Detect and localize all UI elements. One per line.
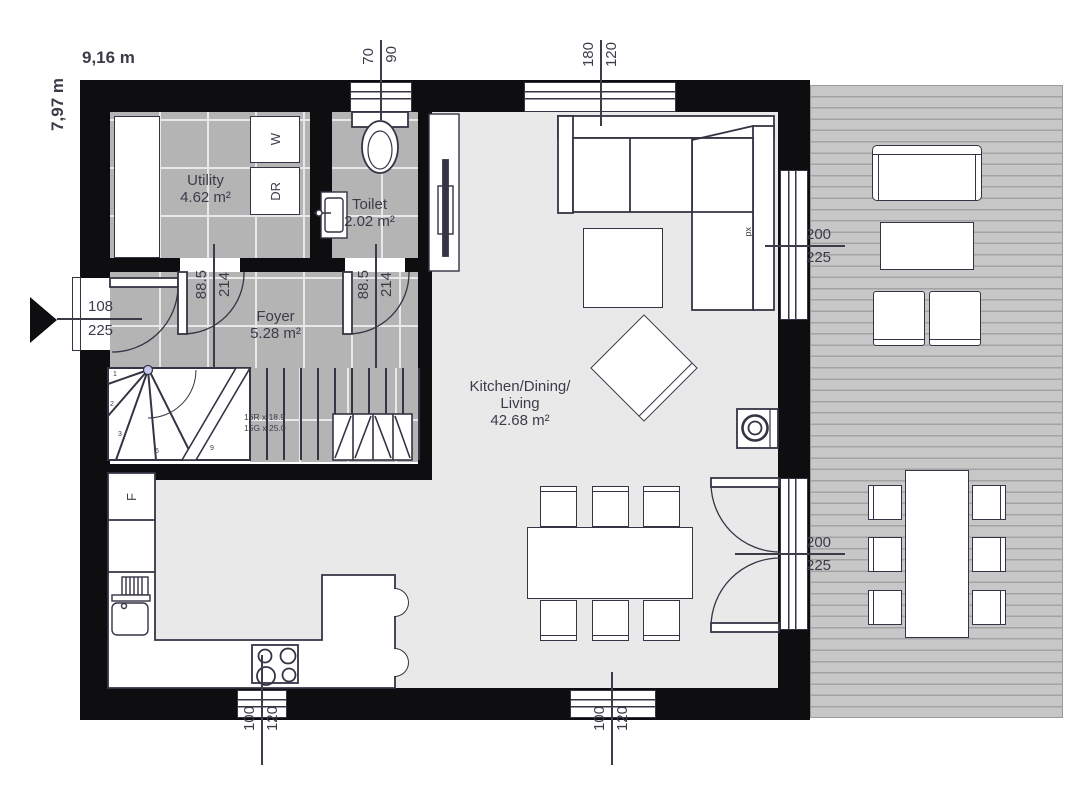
terrace-sofa [872, 145, 982, 201]
dim-toilet-window-h: 90 [383, 46, 400, 63]
dining-chair [643, 486, 680, 527]
dim-dining-window-w: 100 [591, 706, 608, 731]
toilet-area: 2.02 m² [322, 213, 417, 230]
dim-entry-door-w: 108 [78, 298, 123, 315]
dim-utility-door-h: 214 [216, 272, 233, 297]
dim-kitchen-window-h: 120 [264, 706, 281, 731]
entry-door [110, 278, 178, 352]
understair-closet [333, 414, 412, 460]
living-room-label: Kitchen/Dining/ Living 42.68 m² [435, 378, 605, 429]
dim-line [380, 40, 382, 120]
dim-line [57, 318, 142, 320]
coffee-table [583, 228, 663, 308]
dim-terrace-window-w: 200 [806, 226, 831, 243]
dim-living-window-w: 180 [580, 42, 597, 67]
toilet-fixture [352, 112, 408, 173]
overall-width-label: 9,16 m [82, 48, 135, 68]
glazing-note-label: px [743, 227, 753, 237]
terrace-stool [873, 291, 925, 346]
dim-terrace-door-w: 200 [806, 534, 831, 551]
dining-table [527, 527, 693, 599]
dim-line [600, 40, 602, 126]
stair-step-number: 9 [210, 445, 214, 452]
terrace-chair [868, 590, 902, 625]
terrace-chair [972, 590, 1006, 625]
dining-chair [540, 486, 577, 527]
utility-area: 4.62 m² [148, 189, 263, 206]
dim-kitchen-window-w: 100 [241, 706, 258, 731]
washer-label: W [268, 133, 283, 145]
living-area: 42.68 m² [435, 412, 605, 429]
dining-chair [592, 600, 629, 641]
stair-note-line1: 16R x 18.9 [244, 412, 286, 423]
dim-toilet-window-w: 70 [360, 48, 377, 65]
wood-stove [737, 409, 778, 448]
terrace-coffee-table [880, 222, 974, 270]
stair-note-line2: 15G x 25.0 [244, 423, 286, 434]
foyer-name: Foyer [228, 308, 323, 325]
foyer-room-label: Foyer 5.28 m² [228, 308, 323, 342]
dim-line [261, 655, 263, 765]
fridge: F [108, 473, 155, 520]
dim-terrace-window-h: 225 [806, 249, 831, 266]
cooktop [252, 645, 298, 685]
toilet-name: Toilet [322, 196, 417, 213]
stair-step-number: 1 [113, 371, 117, 378]
terrace-chair [972, 485, 1006, 520]
terrace-double-door [711, 478, 780, 632]
dim-line [611, 672, 613, 765]
dim-dining-window-h: 120 [614, 706, 631, 731]
living-name-line1: Kitchen/Dining/ [435, 378, 605, 395]
dim-utility-door-w: 88.5 [193, 270, 210, 299]
dim-line [375, 244, 377, 368]
dim-toilet-door-w: 88.5 [355, 270, 372, 299]
terrace-chair [868, 537, 902, 572]
dim-entry-door-h: 225 [78, 322, 123, 339]
dim-toilet-door-h: 214 [378, 272, 395, 297]
utility-room-label: Utility 4.62 m² [148, 172, 263, 206]
utility-name: Utility [148, 172, 263, 189]
foyer-area: 5.28 m² [228, 325, 323, 342]
dim-line [735, 553, 845, 555]
stair-step-number: 3 [118, 431, 122, 438]
dim-terrace-door-h: 225 [806, 557, 831, 574]
dining-chair [592, 486, 629, 527]
dryer-label: DR [268, 182, 283, 201]
stair-step-number: 5 [155, 448, 159, 455]
stair-note: 16R x 18.9 15G x 25.0 [244, 412, 286, 434]
terrace-stool [929, 291, 981, 346]
dim-line [213, 244, 215, 368]
terrace-sofa-arm [873, 154, 879, 200]
terrace-chair [868, 485, 902, 520]
dining-chair [540, 600, 577, 641]
overall-height-label: 7,97 m [48, 78, 68, 131]
stair-step-number: 2 [110, 401, 114, 408]
terrace-sofa-back [873, 146, 981, 155]
toilet-room-label: Toilet 2.02 m² [322, 196, 417, 230]
entrance-arrow-icon [30, 297, 57, 343]
living-name-line2: Living [435, 395, 605, 412]
terrace-dining-table [905, 470, 969, 638]
dim-line [765, 245, 845, 247]
floor-plan: W DR F 9,16 m 7,97 m 70 [0, 0, 1080, 801]
fridge-label: F [124, 493, 139, 501]
dining-chair [643, 600, 680, 641]
terrace-chair [972, 537, 1006, 572]
tv-unit [429, 114, 459, 271]
terrace-sofa-arm [975, 154, 981, 200]
dim-living-window-h: 120 [603, 42, 620, 67]
washer: W [250, 116, 300, 163]
